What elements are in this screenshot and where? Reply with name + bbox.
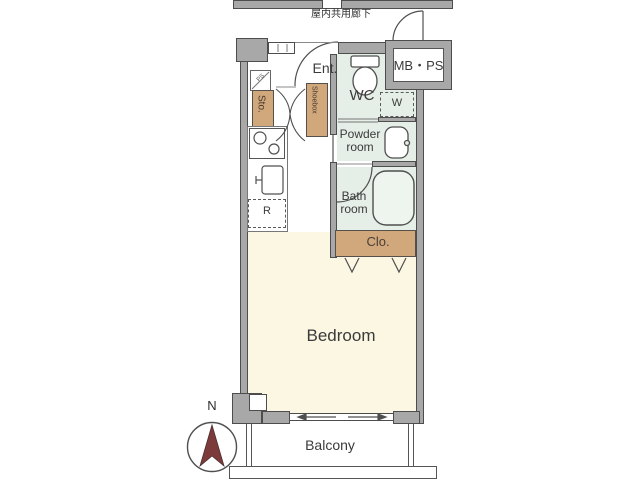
label-bath-room: Bath room xyxy=(336,190,372,215)
label-wc: WC xyxy=(340,88,384,104)
label-shoebox: Shoebox xyxy=(310,86,317,114)
window-balcony-sliding xyxy=(290,413,393,421)
label-washer: W xyxy=(383,98,411,110)
corridor-opening xyxy=(322,0,342,9)
wall-powder-bath xyxy=(372,161,416,167)
balcony-rail-right xyxy=(408,424,414,466)
label-closet: Clo. xyxy=(350,235,406,249)
wall-top-right xyxy=(338,42,392,54)
label-bedroom: Bedroom xyxy=(291,327,391,345)
wall-bedroom-bottom-left xyxy=(262,411,290,424)
label-powder-line2: room xyxy=(330,141,390,154)
compass-icon xyxy=(188,423,237,472)
room-bedroom-area xyxy=(248,232,416,413)
label-powder-line1: Powder xyxy=(330,128,390,141)
window-top xyxy=(268,42,295,54)
balcony-rail-left xyxy=(246,424,252,466)
label-bath-line2: room xyxy=(336,203,372,216)
label-balcony: Balcony xyxy=(280,438,380,453)
label-bath-line1: Bath xyxy=(336,190,372,203)
stove-box xyxy=(249,128,285,159)
wall-wc-powder xyxy=(378,117,416,122)
north-needle-icon xyxy=(200,425,224,466)
label-entrance: Ent. xyxy=(303,61,347,76)
label-corridor: 屋内共用廊下 xyxy=(281,10,401,21)
wall-bedroom-bottom-right xyxy=(393,411,420,424)
label-refrigerator: R xyxy=(253,206,281,218)
balcony-rail-bottom xyxy=(229,466,437,479)
wall-top-left-block xyxy=(236,38,268,62)
label-storage: Sto. xyxy=(255,95,266,113)
label-powder-room: Powder room xyxy=(330,128,390,153)
pillar-bottom-left xyxy=(249,394,267,411)
corridor-wall-right xyxy=(341,0,453,9)
floor-plan: 屋内共用廊下 Ent. Sto. Shoebox PS WC MB・PS W P… xyxy=(0,0,640,480)
wall-right xyxy=(416,88,424,424)
corridor-wall-left xyxy=(233,0,323,9)
label-meter-box: MB・PS xyxy=(392,59,445,73)
label-north: N xyxy=(198,399,226,413)
